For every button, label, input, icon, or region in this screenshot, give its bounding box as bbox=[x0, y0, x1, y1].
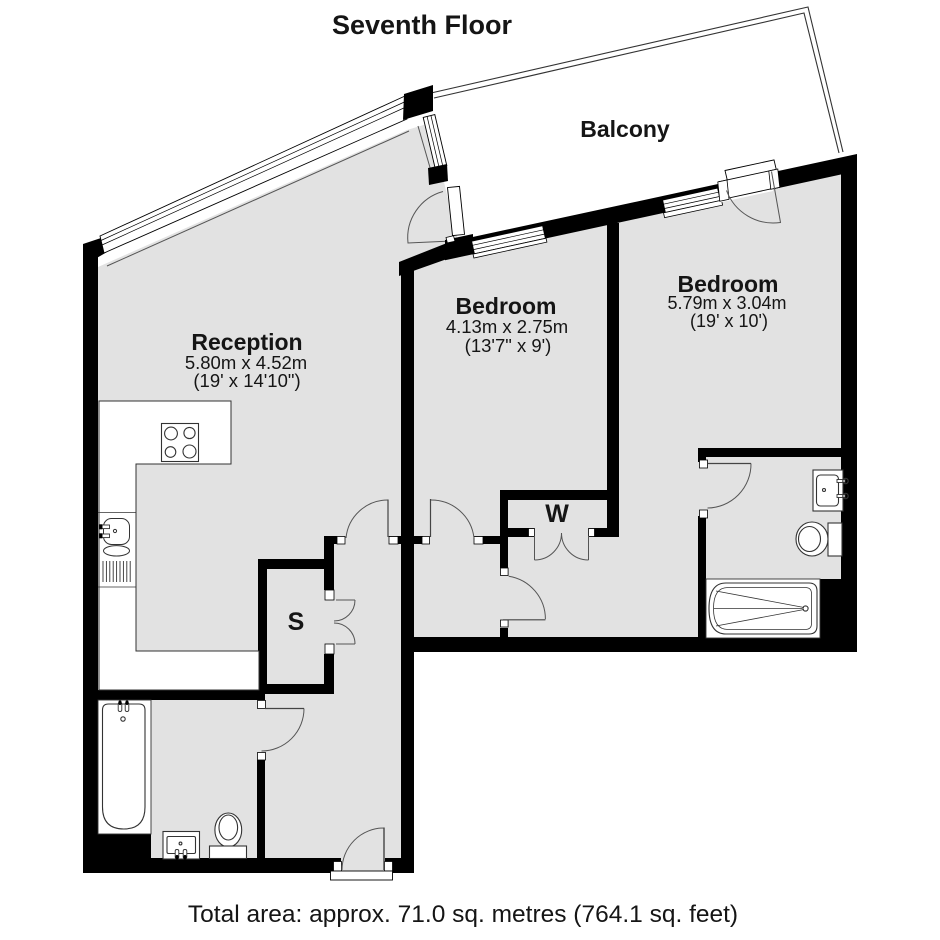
svg-text:Balcony: Balcony bbox=[580, 116, 670, 142]
svg-text:(13'7" x 9'): (13'7" x 9') bbox=[465, 335, 552, 356]
svg-text:Seventh Floor: Seventh Floor bbox=[332, 10, 513, 40]
svg-text:(19' x 14'10"): (19' x 14'10") bbox=[193, 370, 300, 391]
svg-text:W: W bbox=[545, 500, 569, 528]
svg-text:(19' x 10'): (19' x 10') bbox=[690, 311, 768, 331]
svg-text:5.79m x 3.04m: 5.79m x 3.04m bbox=[667, 293, 786, 313]
svg-text:Total area: approx. 71.0 sq. m: Total area: approx. 71.0 sq. metres (764… bbox=[188, 901, 738, 928]
svg-text:4.13m x 2.75m: 4.13m x 2.75m bbox=[446, 316, 568, 337]
svg-text:S: S bbox=[288, 608, 305, 636]
